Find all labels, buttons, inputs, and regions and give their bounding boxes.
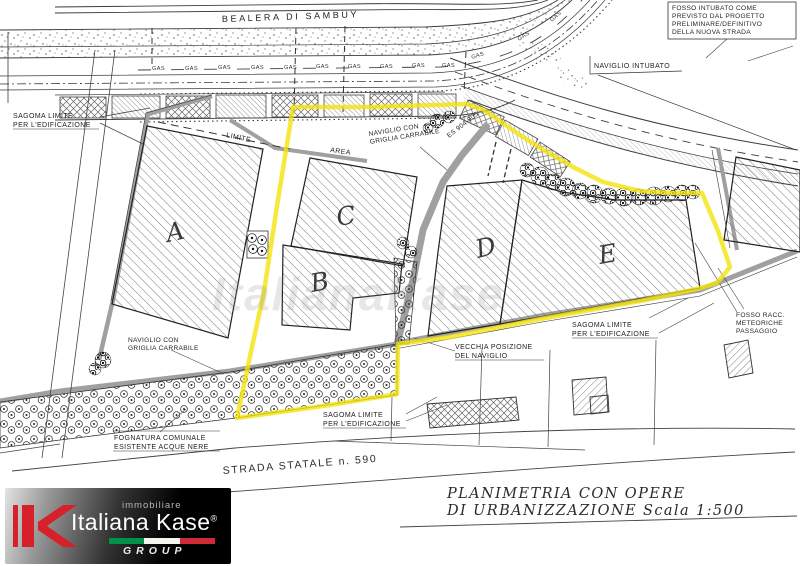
svg-text:METEORICHE: METEORICHE [736,320,783,327]
label-naviglio-griglia-bottom: NAVIGLIO CON GRIGLIA CARRABILE [128,337,199,352]
label-sagoma-right: SAGOMA LIMITE PER L'EDIFICAZIONE [572,322,658,338]
svg-text:DEL NAVIGLIO: DEL NAVIGLIO [455,353,508,360]
svg-text:NAVIGLIO INTUBATO: NAVIGLIO INTUBATO [594,63,670,70]
flag-green-segment [109,538,144,544]
italian-flag-stripe [109,538,215,544]
svg-text:SAGOMA LIMITE: SAGOMA LIMITE [572,322,632,329]
gas-pipeline-label: GAS [442,63,455,69]
outbuilding-long [427,397,519,428]
svg-text:PER L'EDIFICAZIONE: PER L'EDIFICAZIONE [572,331,650,338]
svg-text:ESISTENTE ACQUE NERE: ESISTENTE ACQUE NERE [114,444,209,451]
label-fosso-line2: PREVISTO DAL PROGETTO [672,13,765,20]
label-fosso-racc: FOSSO RACC. METEORICHE PASSAGGIO [736,312,785,335]
tree-planter [247,231,268,258]
svg-text:NAVIGLIO CON: NAVIGLIO CON [128,337,179,344]
flag-red-segment [180,538,215,544]
gas-pipeline-label: GAS [348,64,361,70]
flag-white-segment [144,538,179,544]
site-plan-image: ItalianaKase A B C D E GAS GAS GAS GAS G… [0,0,800,566]
svg-text:FOSSO RACC.: FOSSO RACC. [736,312,785,319]
svg-text:PASSAGGIO: PASSAGGIO [736,328,777,335]
gas-pipeline-label: GAS [316,64,329,70]
svg-text:SAGOMA LIMITE: SAGOMA LIMITE [323,412,383,419]
gas-pipeline-label: GAS [251,65,264,71]
outbuilding-small [724,340,753,378]
svg-text:PER L'EDIFICAZIONE: PER L'EDIFICAZIONE [13,122,91,129]
agency-logo-name: Italiana Kase® [71,509,218,536]
agency-logo-name-text: Italiana Kase [71,509,210,535]
label-fosso-line3: PRELIMINARE/DEFINITIVO [672,21,762,28]
gas-pipeline-label: GAS [152,66,165,72]
agency-logo: immobiliare Italiana Kase® GROUP [5,488,231,564]
gas-pipeline-label: GAS [380,64,393,70]
vegetation-band [0,344,397,448]
svg-text:SAGOMA LIMITE: SAGOMA LIMITE [13,113,73,120]
svg-text:PER L'EDIFICAZIONE: PER L'EDIFICAZIONE [323,421,401,428]
label-fosso-line4: DELLA NUOVA STRADA [672,29,751,36]
gas-pipeline-label: GAS [284,65,297,71]
gas-pipeline-label: GAS [471,51,485,61]
label-vecchia-posizione: VECCHIA POSIZIONE DEL NAVIGLIO [455,344,544,360]
gas-pipeline-label: GAS [185,66,198,72]
site-plan-svg: ItalianaKase A B C D E GAS GAS GAS GAS G… [0,0,800,566]
label-fognatura: FOGNATURA COMUNALE ESISTENTE ACQUE NERE [113,431,220,451]
svg-text:GRIGLIA CARRABILE: GRIGLIA CARRABILE [128,345,199,352]
agency-logo-group: GROUP [123,545,187,557]
watermark-text: ItalianaKase [212,268,504,320]
agency-logo-registered-mark: ® [210,513,217,523]
title-line2: DI URBANIZZAZIONE Scala 1:500 [446,503,745,519]
svg-text:FOGNATURA COMUNALE: FOGNATURA COMUNALE [114,435,206,442]
label-strada-statale: STRADA STATALE n. 590 [222,453,377,477]
label-naviglio-intubato: NAVIGLIO INTUBATO [590,56,682,74]
title-line1: PLANIMETRIA CON OPERE [446,486,686,502]
building-right-edge-footprint [724,157,800,252]
label-sagoma-bottom: SAGOMA LIMITE PER L'EDIFICAZIONE [323,412,406,428]
road-gravel-patch [517,37,564,67]
road-gravel-patch [553,63,591,93]
gas-pipeline-label: GAS [412,63,425,69]
label-fosso-intubato-box: FOSSO INTUBATO COME PREVISTO DAL PROGETT… [668,2,796,39]
gas-pipeline-label: GAS [218,65,231,71]
svg-text:VECCHIA POSIZIONE: VECCHIA POSIZIONE [455,344,533,351]
outbuilding-square-annex [590,395,609,414]
title-block: PLANIMETRIA CON OPERE DI URBANIZZAZIONE … [446,486,745,519]
label-fosso-line1: FOSSO INTUBATO COME [672,5,757,12]
